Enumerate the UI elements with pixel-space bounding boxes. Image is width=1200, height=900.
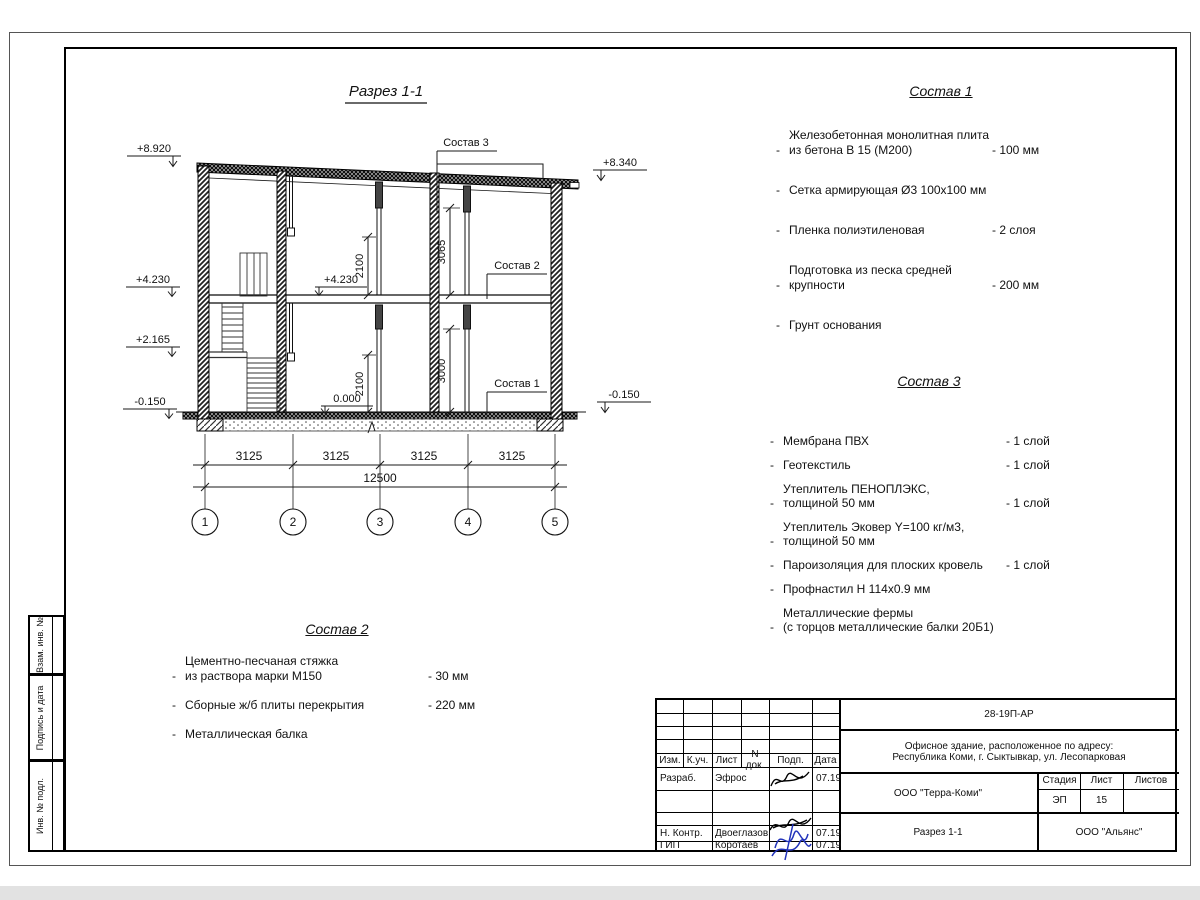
dim-3125-3: 3125 — [411, 449, 438, 463]
roof-slab — [197, 163, 579, 194]
axis-4: 4 — [465, 515, 472, 529]
sheet-value: 15 — [1080, 789, 1123, 812]
leader-sostav2: Состав 2 — [487, 260, 547, 299]
bullet: - — [770, 434, 783, 448]
dim-3000: 3000 — [436, 359, 448, 383]
composition-1-title: Состав 1 — [776, 84, 1106, 98]
bullet: - — [776, 278, 789, 293]
axis-1: 1 — [202, 515, 209, 529]
list-item: - Утеплитель ПЕНОПЛЭКС, толщиной 50 мм -… — [770, 482, 1088, 510]
axis-2: 2 — [290, 515, 297, 529]
col-kuch: К.уч. — [683, 753, 712, 767]
stage-label: Стадия — [1039, 772, 1080, 789]
bullet: - — [770, 582, 783, 596]
svg-text:+8.920: +8.920 — [137, 143, 171, 155]
elevation-8920: +8.920 — [127, 143, 181, 167]
dim-3125-2: 3125 — [323, 449, 350, 463]
wall-stair — [277, 171, 286, 412]
composition-3-title: Состав 3 — [770, 374, 1088, 388]
side-box-podpis: Подпись и дата — [28, 674, 65, 761]
list-item: - Утеплитель Эковер Y=100 кг/м3, толщино… — [770, 520, 1088, 548]
bullet: - — [776, 318, 789, 333]
col-ndok: N док. — [741, 753, 769, 767]
axis-3: 3 — [377, 515, 384, 529]
section-drawing: Разрез 1-1 — [64, 47, 724, 607]
dim-3065: 3065 — [436, 240, 448, 264]
col-data: Дата — [812, 753, 839, 767]
bullet: - — [770, 458, 783, 472]
signature-razrab — [771, 772, 809, 786]
dim-12500: 12500 — [363, 471, 397, 485]
composition-3-list: Состав 3 - Мембрана ПВХ - 1 слой - Геоте… — [770, 374, 1088, 644]
sheets-label: Листов — [1123, 772, 1179, 789]
list-item: - Сборные ж/б плиты перекрытия - 220 мм — [172, 698, 502, 713]
svg-text:-0.150: -0.150 — [134, 396, 165, 408]
document-number: 28-19П-АР — [839, 700, 1179, 729]
date-nkontr: 07.19 — [813, 825, 839, 841]
svg-text:+2.165: +2.165 — [136, 334, 170, 346]
date-razrab: 07.19 — [813, 767, 839, 790]
bullet: - — [172, 669, 185, 684]
elevation-minus015-left: -0.150 — [123, 396, 177, 419]
list-item: - Мембрана ПВХ - 1 слой — [770, 434, 1088, 448]
elevation-2165: +2.165 — [126, 334, 180, 357]
list-item: - Подготовка из песка средней крупности … — [776, 263, 1106, 293]
dim-3125-1: 3125 — [236, 449, 263, 463]
bullet: - — [172, 698, 185, 713]
bullet: - — [172, 727, 185, 742]
name-gip: Коротаев — [712, 841, 769, 850]
signature-nkontr — [770, 818, 811, 830]
list-item: - Пленка полиэтиленовая - 2 слоя — [776, 223, 1106, 238]
contractor-org: ООО "Альянс" — [1039, 814, 1179, 850]
bullet: - — [776, 223, 789, 238]
scan-edge — [0, 886, 1200, 900]
stairs — [209, 253, 281, 412]
leader-sostav3-text: Состав 3 — [443, 137, 489, 149]
elevation-minus015-right: -0.150 — [597, 389, 651, 413]
name-razrab: Эфрос — [712, 767, 769, 790]
bullet: - — [776, 183, 789, 198]
list-item: - Цементно-песчаная стяжка из раствора м… — [172, 654, 502, 684]
svg-text:+4.230: +4.230 — [136, 274, 170, 286]
composition-2-list: Состав 2 - Цементно-песчаная стяжка из р… — [172, 622, 502, 756]
list-item: - Металлические фермы (с торцов металлич… — [770, 606, 1088, 634]
list-item: - Геотекстиль - 1 слой — [770, 458, 1088, 472]
col-list: Лист — [712, 753, 741, 767]
wall-axis1 — [198, 166, 209, 419]
elevation-4230-left: +4.230 — [126, 274, 180, 297]
axis-5: 5 — [552, 515, 559, 529]
role-nkontr: Н. Контр. — [657, 825, 712, 841]
svg-text:+8.340: +8.340 — [603, 157, 637, 169]
bullet: - — [770, 534, 783, 548]
side-label-vzam: Взам. инв. № — [35, 617, 45, 673]
drawing-name: Разрез 1-1 — [839, 814, 1037, 850]
bullet: - — [776, 143, 789, 158]
bullet: - — [770, 558, 783, 572]
leader-sostav1: Состав 1 — [487, 378, 547, 417]
section-title-text: Разрез 1-1 — [349, 83, 423, 100]
list-item: - Железобетонная монолитная плита из бет… — [776, 128, 1106, 158]
role-gip: ГИП — [657, 841, 712, 850]
list-item: - Грунт основания — [776, 318, 1106, 333]
date-gip: 07.19 — [813, 841, 839, 850]
name-nkontr: Двоеглазов — [712, 825, 769, 841]
list-item: - Пароизоляция для плоских кровель - 1 с… — [770, 558, 1088, 572]
side-box-inv: Инв. № подл. — [28, 760, 65, 852]
object-description: Офисное здание, расположенное по адресу:… — [839, 731, 1179, 772]
list-item: - Сетка армирующая Ø3 100х100 мм — [776, 183, 1106, 198]
vertical-dimensions: 2100 2100 3065 3000 — [354, 204, 460, 416]
svg-text:+4.230: +4.230 — [324, 274, 358, 286]
composition-2-title: Состав 2 — [172, 622, 502, 636]
ground-slab — [176, 412, 586, 433]
role-razrab: Разраб. — [657, 767, 712, 790]
title-block: Изм. К.уч. Лист N док. Подп. Дата Разраб… — [655, 698, 1177, 852]
side-label-inv: Инв. № подл. — [35, 778, 45, 834]
stage-value: ЭП — [1039, 789, 1080, 812]
sheet-label: Лист — [1080, 772, 1123, 789]
stair-railing — [240, 253, 267, 296]
drawing-sheet: { "ui": { "bullet": "-" }, "drawing": { … — [0, 0, 1200, 900]
signature-gip — [772, 824, 811, 860]
wall-axis5 — [551, 183, 562, 419]
side-box-vzam: Взам. инв. № — [28, 615, 65, 675]
elevation-8340: +8.340 — [593, 157, 647, 181]
bullet: - — [770, 620, 783, 634]
leader-sostav2-text: Состав 2 — [494, 260, 540, 272]
bullet: - — [770, 496, 783, 510]
svg-text:-0.150: -0.150 — [608, 389, 639, 401]
client-org: ООО "Терра-Коми" — [839, 774, 1037, 812]
dim-3125-4: 3125 — [499, 449, 526, 463]
leader-sostav1-text: Состав 1 — [494, 378, 540, 390]
section-title: Разрез 1-1 — [345, 83, 427, 103]
list-item: - Профнастил Н 114х0.9 мм — [770, 582, 1088, 596]
composition-1-list: Состав 1 - Железобетонная монолитная пли… — [776, 84, 1106, 358]
svg-text:0.000: 0.000 — [333, 393, 361, 405]
signatures — [767, 764, 815, 864]
side-label-podpis: Подпись и дата — [35, 685, 45, 750]
list-item: - Металлическая балка — [172, 727, 502, 742]
axis-dimensions: 3125 3125 3125 3125 12500 1 2 3 4 5 — [192, 434, 568, 535]
col-izm: Изм. — [657, 753, 683, 767]
